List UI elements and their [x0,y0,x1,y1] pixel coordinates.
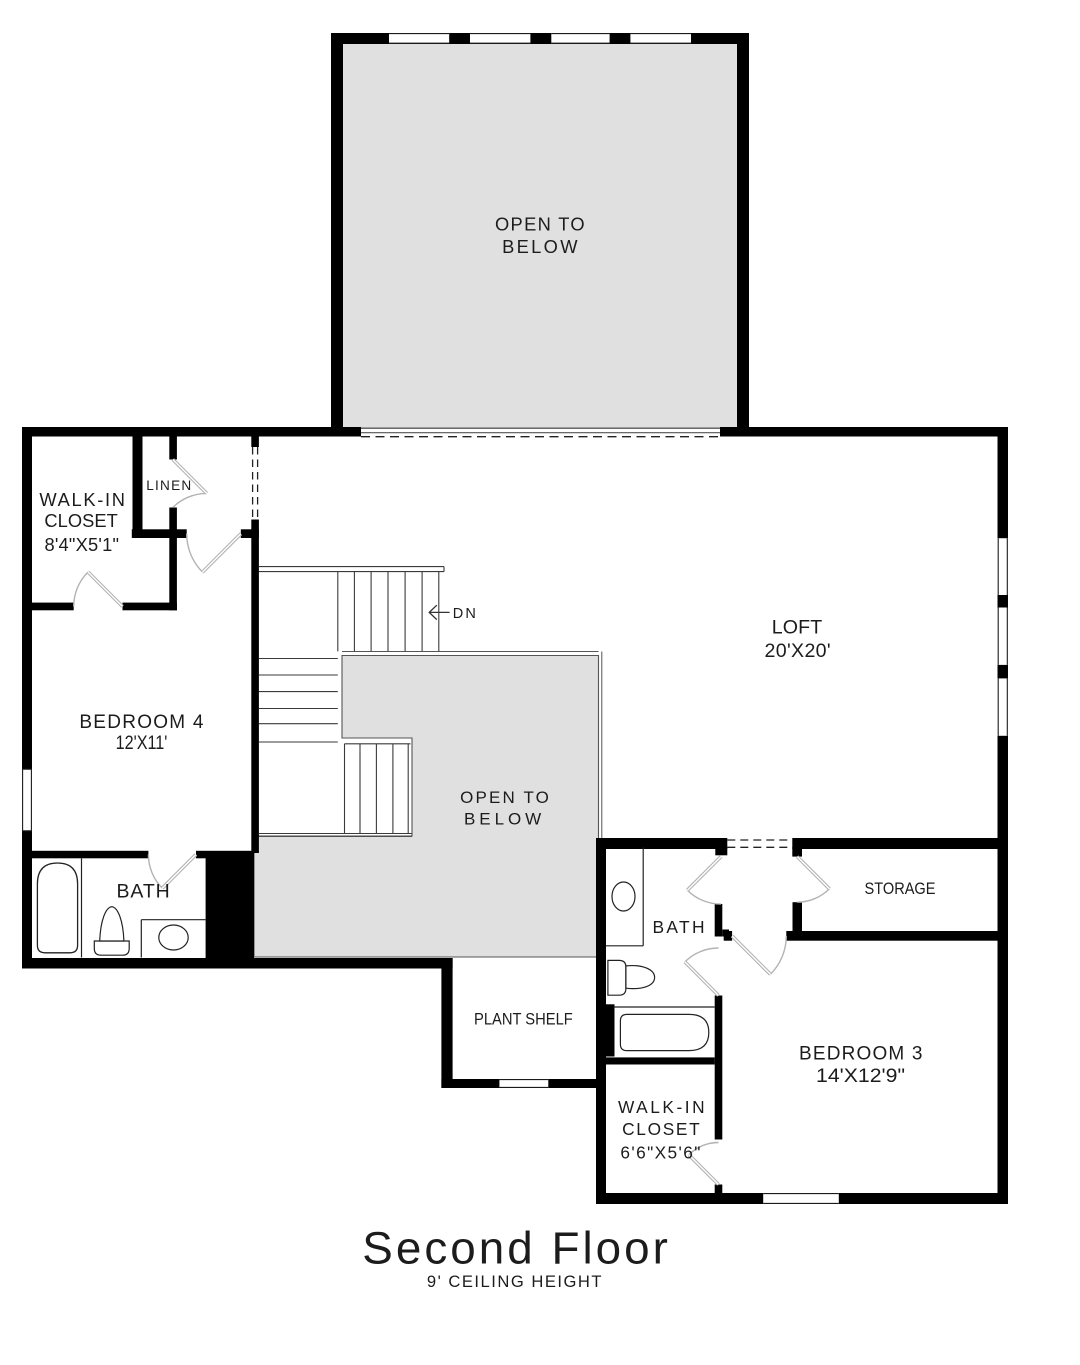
svg-text:BELOW: BELOW [502,236,578,257]
svg-text:LOFT: LOFT [772,617,823,639]
svg-text:STORAGE: STORAGE [865,880,936,898]
svg-text:9' CEILING HEIGHT: 9' CEILING HEIGHT [427,1272,602,1291]
svg-text:20'X20': 20'X20' [765,640,831,662]
svg-text:BEDROOM 3: BEDROOM 3 [799,1044,922,1065]
svg-text:14'X12'9": 14'X12'9" [816,1066,905,1087]
svg-text:LINEN: LINEN [146,478,191,493]
svg-text:12'X11': 12'X11' [116,733,168,754]
svg-text:OPEN TO: OPEN TO [495,214,585,235]
svg-text:BATH: BATH [117,880,170,902]
svg-text:BATH: BATH [652,917,704,937]
svg-text:PLANT SHELF: PLANT SHELF [474,1010,573,1029]
svg-text:8'4"X5'1": 8'4"X5'1" [44,534,119,555]
svg-text:CLOSET: CLOSET [44,510,117,531]
svg-text:6'6"X5'6": 6'6"X5'6" [620,1142,700,1162]
